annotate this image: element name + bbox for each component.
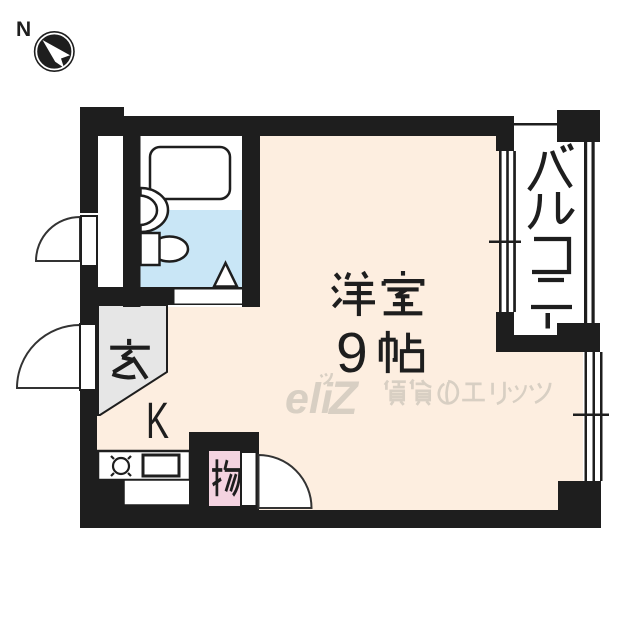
svg-text:K: K — [146, 392, 169, 449]
svg-text:9: 9 — [336, 321, 368, 385]
svg-text:N: N — [16, 18, 31, 41]
